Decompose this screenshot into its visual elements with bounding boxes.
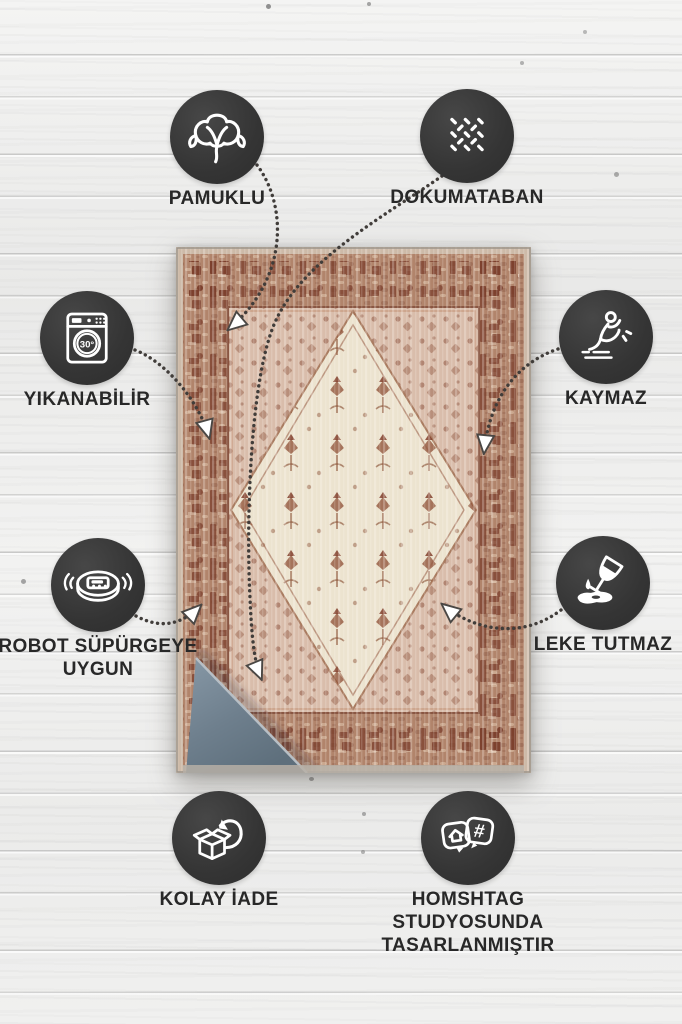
wood-knot <box>614 172 619 177</box>
wood-knot <box>520 61 524 65</box>
washing-machine-icon: 30° <box>40 291 134 385</box>
badge-leke-tutmaz: LEKE TUTMAZ <box>556 536 650 630</box>
badge-robot-supurgeye: ROBOT SÜPÜRGEYE UYGUN <box>51 538 145 632</box>
stain-proof-icon <box>556 536 650 630</box>
badge-label-kolay-iade: KOLAY İADE <box>159 889 278 912</box>
anti-slip-icon <box>559 290 653 384</box>
wood-knot <box>266 4 271 9</box>
badge-yikanabilir: 30° YIKANABİLİR <box>40 291 134 385</box>
rug-bottom-edge <box>183 765 524 773</box>
product-infographic: PAMUKLU <box>0 0 682 1024</box>
wood-knot <box>309 777 314 781</box>
wood-knot <box>583 30 587 34</box>
wood-knot <box>361 850 365 854</box>
badge-pamuklu: PAMUKLU <box>170 90 264 184</box>
badge-label-yikanabilir: YIKANABİLİR <box>24 389 151 412</box>
badge-label-robot-supurgeye: ROBOT SÜPÜRGEYE UYGUN <box>0 636 216 682</box>
badge-label-leke-tutmaz: LEKE TUTMAZ <box>534 634 672 657</box>
woven-base-icon <box>420 89 514 183</box>
badge-kolay-iade: KOLAY İADE <box>172 791 266 885</box>
badge-label-pamuklu: PAMUKLU <box>169 188 265 211</box>
wash-temperature: 30° <box>80 339 95 350</box>
robot-vacuum-icon <box>51 538 145 632</box>
cotton-icon <box>170 90 264 184</box>
wood-knot <box>367 2 371 6</box>
badge-kaymaz: KAYMAZ <box>559 290 653 384</box>
easy-return-icon <box>172 791 266 885</box>
wood-knot <box>21 579 26 584</box>
rug-image <box>176 247 531 773</box>
wood-knot <box>362 812 366 816</box>
badge-label-kaymaz: KAYMAZ <box>565 388 647 411</box>
badge-homshtag: # HOMSHTAG STUDYOSUNDA TASARLANMIŞTIR <box>421 791 515 885</box>
design-studio-icon: # <box>421 791 515 885</box>
badge-label-homshtag: HOMSHTAG STUDYOSUNDA TASARLANMIŞTIR <box>378 889 558 957</box>
badge-label-dokumataban: DOKUMATABAN <box>390 187 544 210</box>
badge-dokumataban: DOKUMATABAN <box>420 89 514 183</box>
hashtag-glyph: # <box>472 821 486 843</box>
